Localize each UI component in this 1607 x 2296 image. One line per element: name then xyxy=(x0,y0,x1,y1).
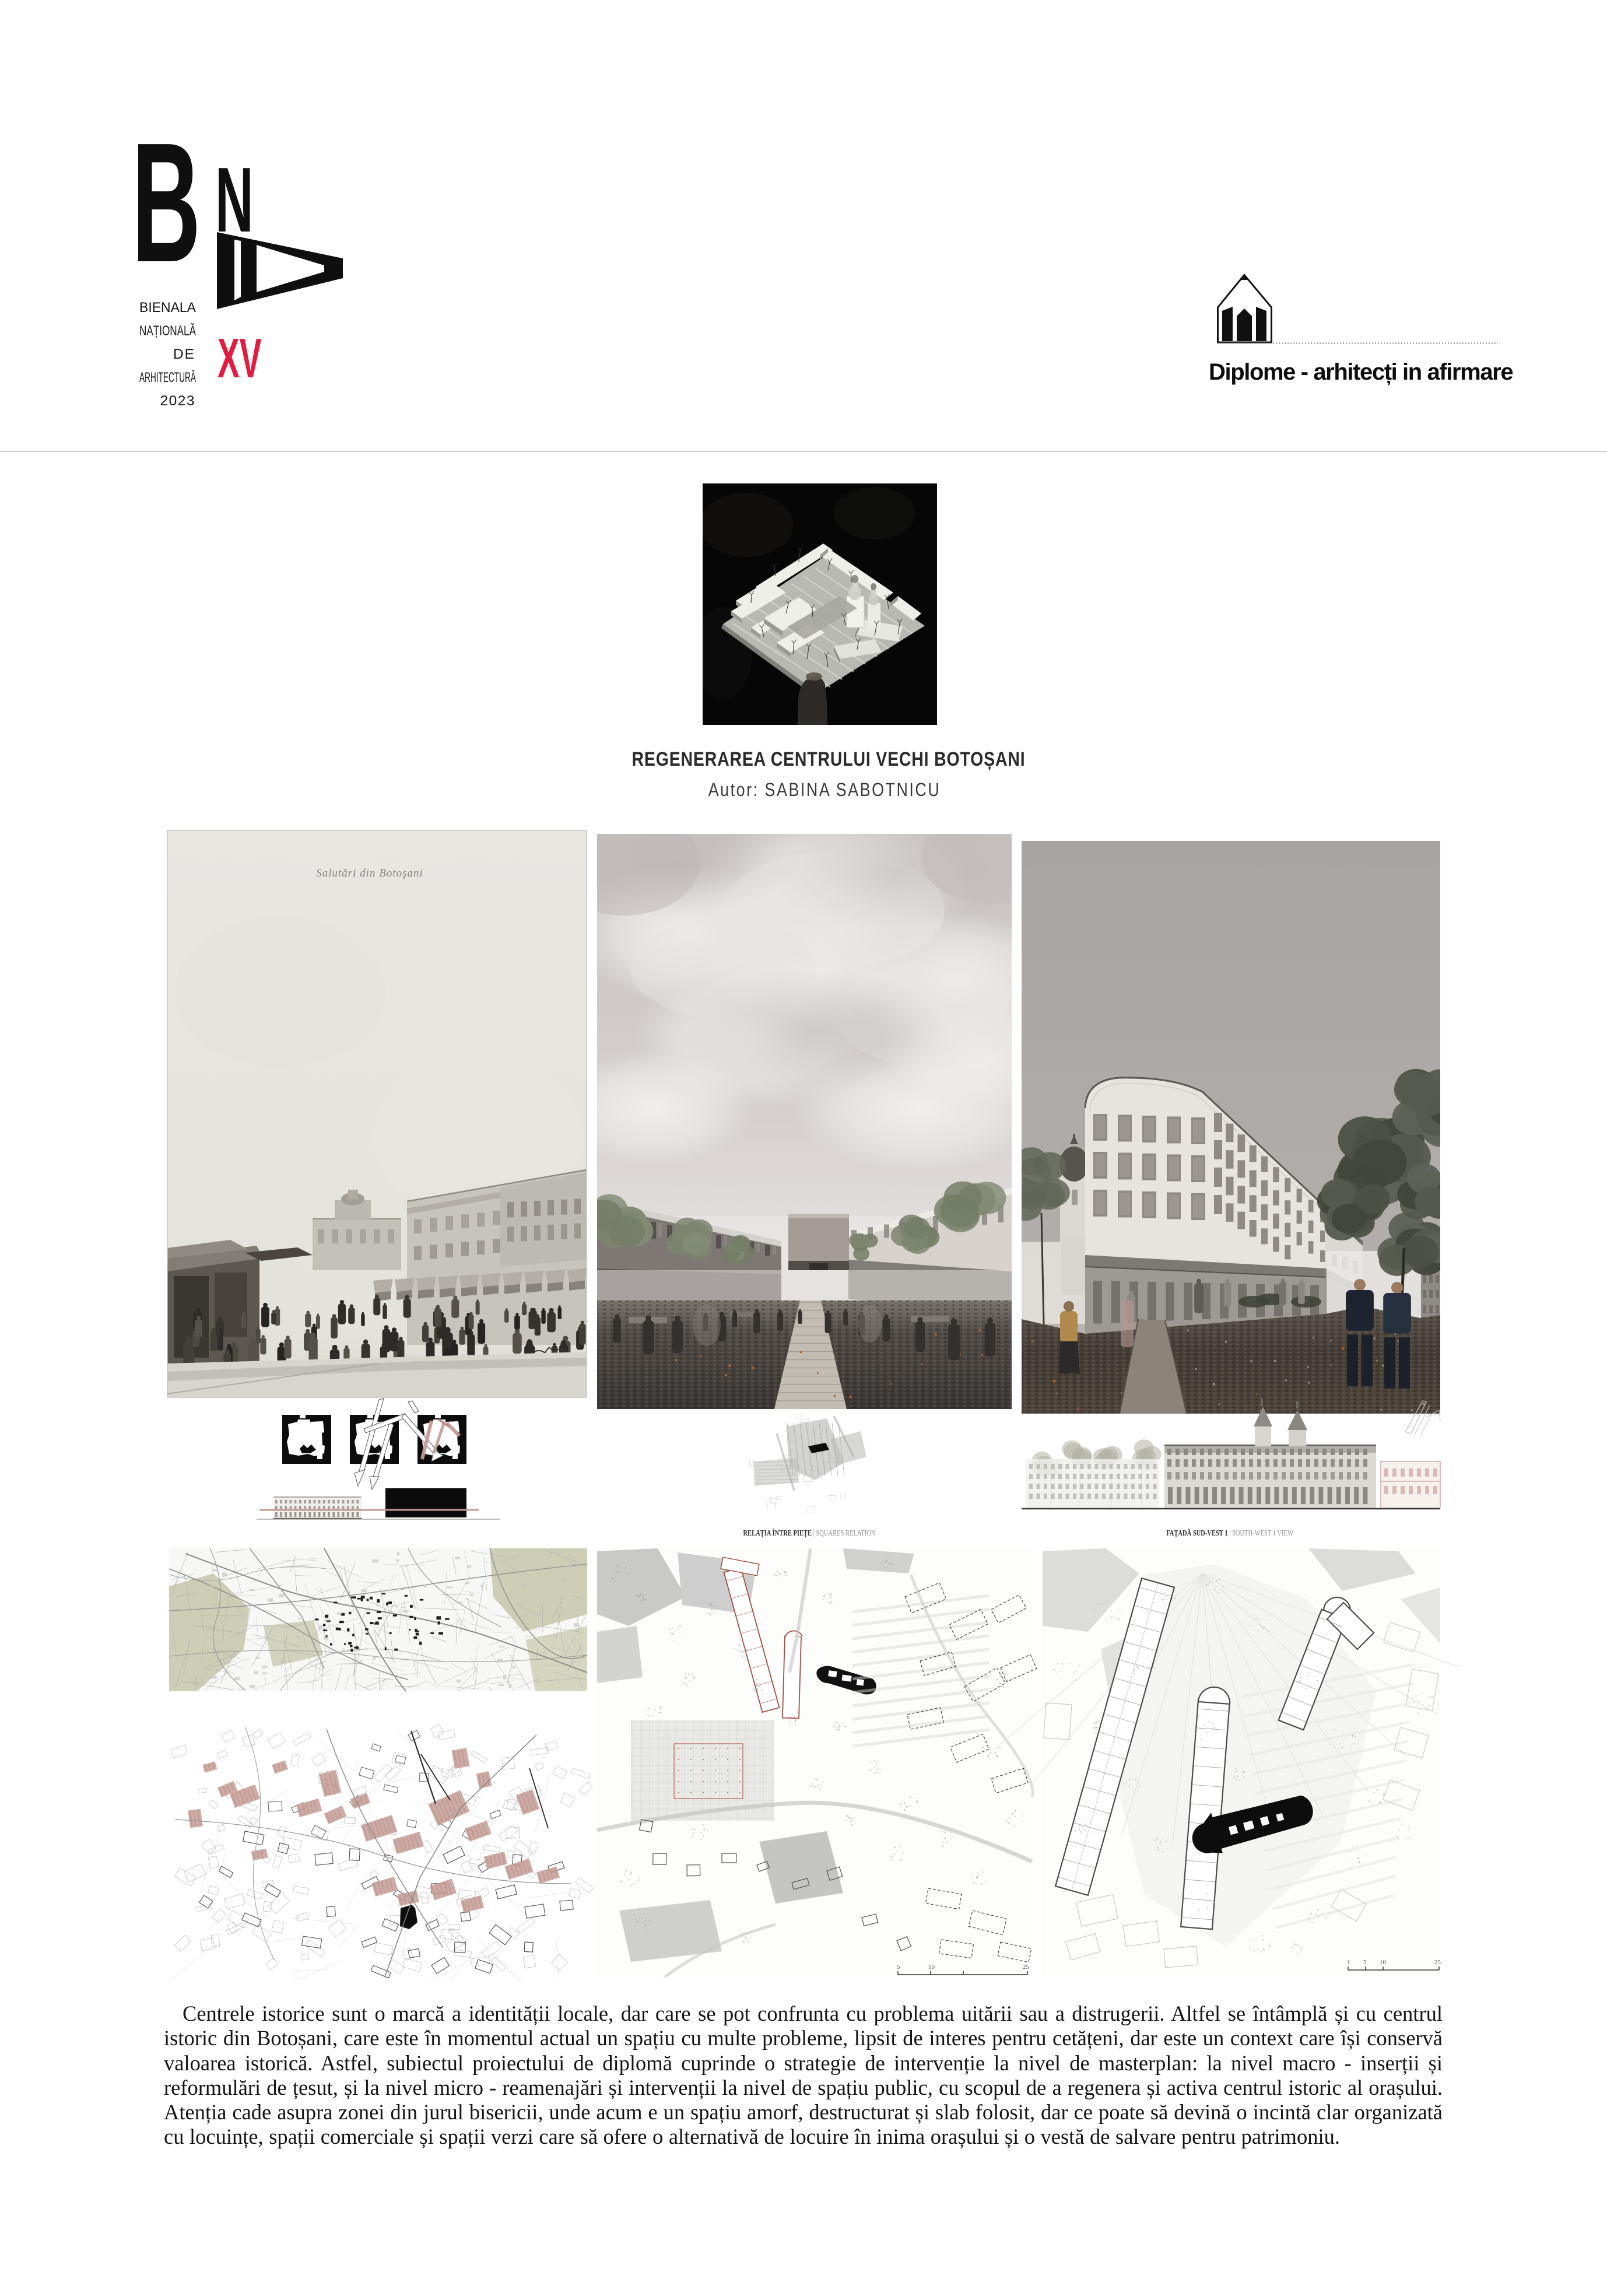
svg-text:5: 5 xyxy=(1363,1959,1367,1966)
svg-text:ARHITECTURĂ: ARHITECTURĂ xyxy=(139,370,196,385)
svg-text:5: 5 xyxy=(897,1964,900,1971)
svg-text:XV: XV xyxy=(217,327,262,390)
svg-text:Salutări din Botoşani: Salutări din Botoşani xyxy=(316,867,423,879)
svg-text:NAȚIONALĂ: NAȚIONALĂ xyxy=(139,323,196,339)
svg-text:BIENALA: BIENALA xyxy=(139,300,197,316)
svg-text:10: 10 xyxy=(928,1964,935,1971)
svg-text:B: B xyxy=(132,108,201,298)
svg-text:10: 10 xyxy=(1380,1959,1387,1966)
svg-text:DE: DE xyxy=(173,346,195,362)
svg-text:25: 25 xyxy=(1023,1964,1030,1971)
svg-text:1: 1 xyxy=(1347,1959,1350,1966)
svg-text:25: 25 xyxy=(1434,1959,1441,1966)
svg-text:2023: 2023 xyxy=(160,393,195,409)
